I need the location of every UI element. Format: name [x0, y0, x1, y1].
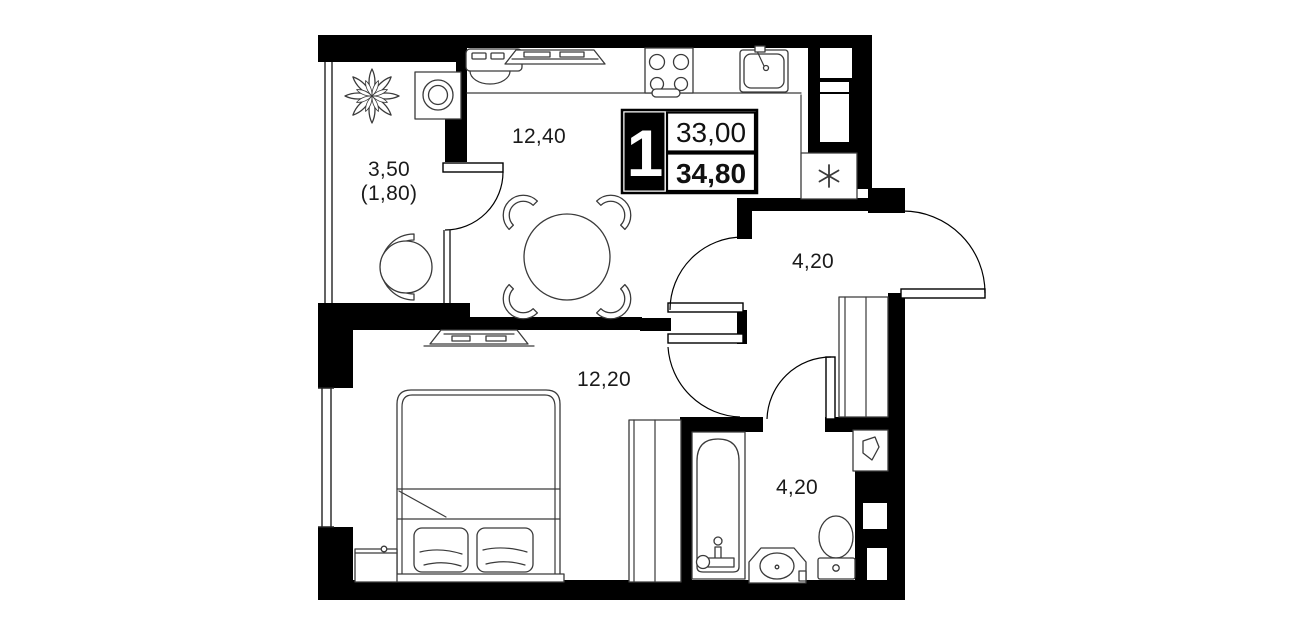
chair-icon: [495, 187, 537, 229]
door-leaf: [443, 163, 503, 172]
plant-icon: [345, 69, 399, 123]
entrance-door: [901, 211, 985, 298]
washbasin-icon: [749, 548, 806, 583]
bedroom-room: 12,20: [355, 330, 681, 582]
door-leaf: [668, 334, 743, 343]
door-leaf: [826, 357, 835, 419]
bathroom-area-label: 4,20: [776, 476, 818, 499]
door-arc: [668, 347, 740, 417]
door-leaf: [668, 303, 743, 312]
hallway-closet-icon: [839, 297, 888, 417]
kitchen-area-label: 12,40: [512, 125, 566, 148]
door-arc: [670, 237, 743, 310]
kitchen-door: [668, 237, 743, 312]
bedroom-area-label: 12,20: [577, 368, 631, 391]
washing-machine-icon: [415, 72, 461, 119]
balcony-glazing-icon: [325, 62, 332, 303]
door-arc: [903, 211, 985, 293]
towel-cabinet-icon: [853, 430, 888, 471]
area-primary-value: 33,00: [676, 117, 746, 148]
hallway-area-label: 4,20: [792, 250, 834, 273]
lounge-chair-icon: [380, 234, 432, 300]
cooktop-tray-icon: [505, 50, 605, 64]
door-arc: [445, 172, 503, 230]
info-box: 1 33,00 34,80: [622, 110, 757, 193]
hallway-room: 4,20: [792, 250, 888, 417]
door-leaf: [901, 289, 985, 298]
nightstand-icon: [355, 546, 397, 582]
toilet-icon: [818, 516, 855, 579]
floor-plan: 3,50 (1,80): [0, 0, 1301, 630]
bedroom-door: [668, 334, 743, 417]
wardrobe-icon: [629, 420, 681, 582]
balcony-area-label: 3,50: [368, 158, 410, 181]
balcony-area-secondary-label: (1,80): [361, 182, 418, 205]
door-arc: [767, 357, 831, 419]
bedroom-window-icon: [318, 388, 334, 527]
area-total-value: 34,80: [676, 158, 746, 189]
bathtub-icon: [692, 432, 745, 579]
pillow-icon: [477, 528, 533, 572]
stove-icon: [645, 48, 693, 97]
pillow-icon: [414, 528, 468, 572]
dining-table-icon: [495, 187, 639, 327]
floor-plan-page: 3,50 (1,80): [0, 0, 1301, 630]
rooms-count-value: 1: [627, 116, 664, 190]
bathroom-door: [767, 357, 835, 419]
balcony-door: [443, 163, 503, 303]
kitchen-sink-icon: [740, 46, 788, 92]
tv-console-icon: [424, 330, 534, 346]
double-bed-icon: [392, 390, 564, 582]
